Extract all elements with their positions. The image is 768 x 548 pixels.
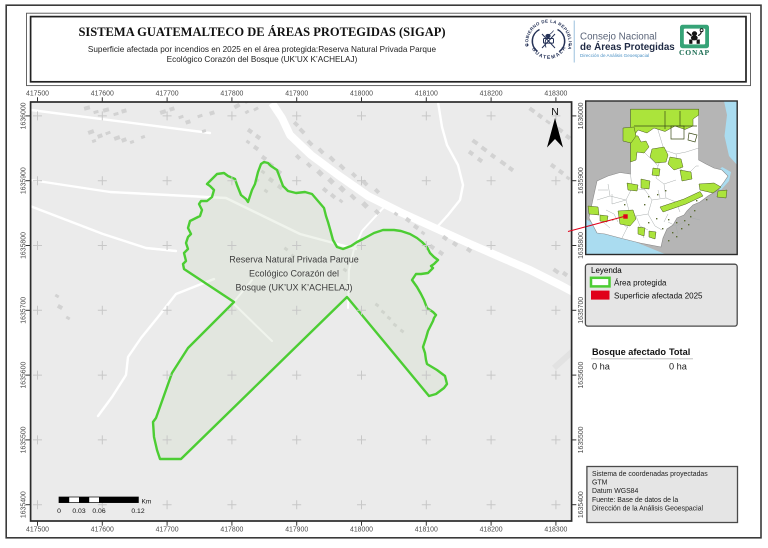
svg-text:1635700: 1635700 [578,297,585,324]
svg-text:417900: 417900 [285,91,308,98]
svg-text:418300: 418300 [544,91,567,98]
svg-text:Consejo Nacional: Consejo Nacional [580,32,657,43]
svg-text:0 ha: 0 ha [592,362,611,372]
svg-text:418000: 418000 [350,527,373,534]
svg-text:418100: 418100 [415,527,438,534]
svg-text:Dirección de la Análisis Geoes: Dirección de la Análisis Geoespacial [592,505,704,512]
svg-text:418200: 418200 [480,527,503,534]
svg-text:1636000: 1636000 [21,102,28,129]
svg-text:SISTEMA GUATEMALTECO DE ÁREAS: SISTEMA GUATEMALTECO DE ÁREAS PROTEGIDAS… [78,25,445,39]
svg-text:Ecológico Corazón del: Ecológico Corazón del [249,269,339,279]
svg-text:417900: 417900 [285,527,308,534]
svg-text:GTM: GTM [592,480,608,487]
svg-text:418300: 418300 [544,527,567,534]
svg-text:1635600: 1635600 [21,362,28,389]
svg-text:1635900: 1635900 [578,167,585,194]
svg-text:1635500: 1635500 [21,426,28,453]
svg-text:418000: 418000 [350,91,373,98]
svg-text:418100: 418100 [415,91,438,98]
svg-text:417600: 417600 [91,91,114,98]
svg-text:1636000: 1636000 [578,102,585,129]
svg-text:Superficie afectada por incend: Superficie afectada por incendios en 202… [88,45,437,54]
svg-text:Total: Total [669,347,690,357]
svg-text:Sistema de coordenadas proyect: Sistema de coordenadas proyectadas [592,471,708,478]
svg-text:1635400: 1635400 [578,491,585,518]
svg-text:417800: 417800 [220,91,243,98]
svg-text:Reserva Natural Privada Parque: Reserva Natural Privada Parque [229,255,359,265]
svg-text:Dirección de Análisis Geoespac: Dirección de Análisis Geoespacial [580,53,649,58]
svg-text:Datum WGS84: Datum WGS84 [592,488,639,495]
svg-text:de Áreas Protegidas: de Áreas Protegidas [580,41,675,53]
svg-text:Bosque (UK’UX K’ACHELAJ): Bosque (UK’UX K’ACHELAJ) [235,283,352,293]
svg-text:1635800: 1635800 [21,232,28,259]
svg-text:0: 0 [57,508,61,515]
svg-text:Ecológico Corazón del Bosque (: Ecológico Corazón del Bosque (UK’UX K’AC… [167,55,358,64]
svg-text:Área protegida: Área protegida [614,279,667,288]
svg-text:1635900: 1635900 [21,167,28,194]
svg-text:Km: Km [142,499,152,506]
svg-text:0.06: 0.06 [92,508,105,515]
svg-text:Superficie afectada 2025: Superficie afectada 2025 [614,292,703,301]
svg-text:0 ha: 0 ha [669,362,688,372]
svg-text:Bosque afectado: Bosque afectado [592,347,666,357]
svg-text:417800: 417800 [220,527,243,534]
svg-text:418200: 418200 [480,91,503,98]
svg-text:417700: 417700 [156,527,179,534]
svg-text:1635700: 1635700 [21,297,28,324]
svg-text:417600: 417600 [91,527,114,534]
svg-text:1635800: 1635800 [578,232,585,259]
svg-text:CONAP: CONAP [679,48,710,57]
svg-text:1635400: 1635400 [21,491,28,518]
svg-text:417500: 417500 [26,527,49,534]
svg-text:0.03: 0.03 [72,508,85,515]
svg-text:1635500: 1635500 [578,426,585,453]
svg-text:Leyenda: Leyenda [591,266,622,275]
svg-text:0.12: 0.12 [131,508,144,515]
svg-text:417500: 417500 [26,91,49,98]
svg-text:417700: 417700 [156,91,179,98]
svg-text:N: N [551,106,559,118]
svg-text:1635600: 1635600 [578,362,585,389]
svg-text:Fuente: Base de datos de la: Fuente: Base de datos de la [592,497,678,504]
